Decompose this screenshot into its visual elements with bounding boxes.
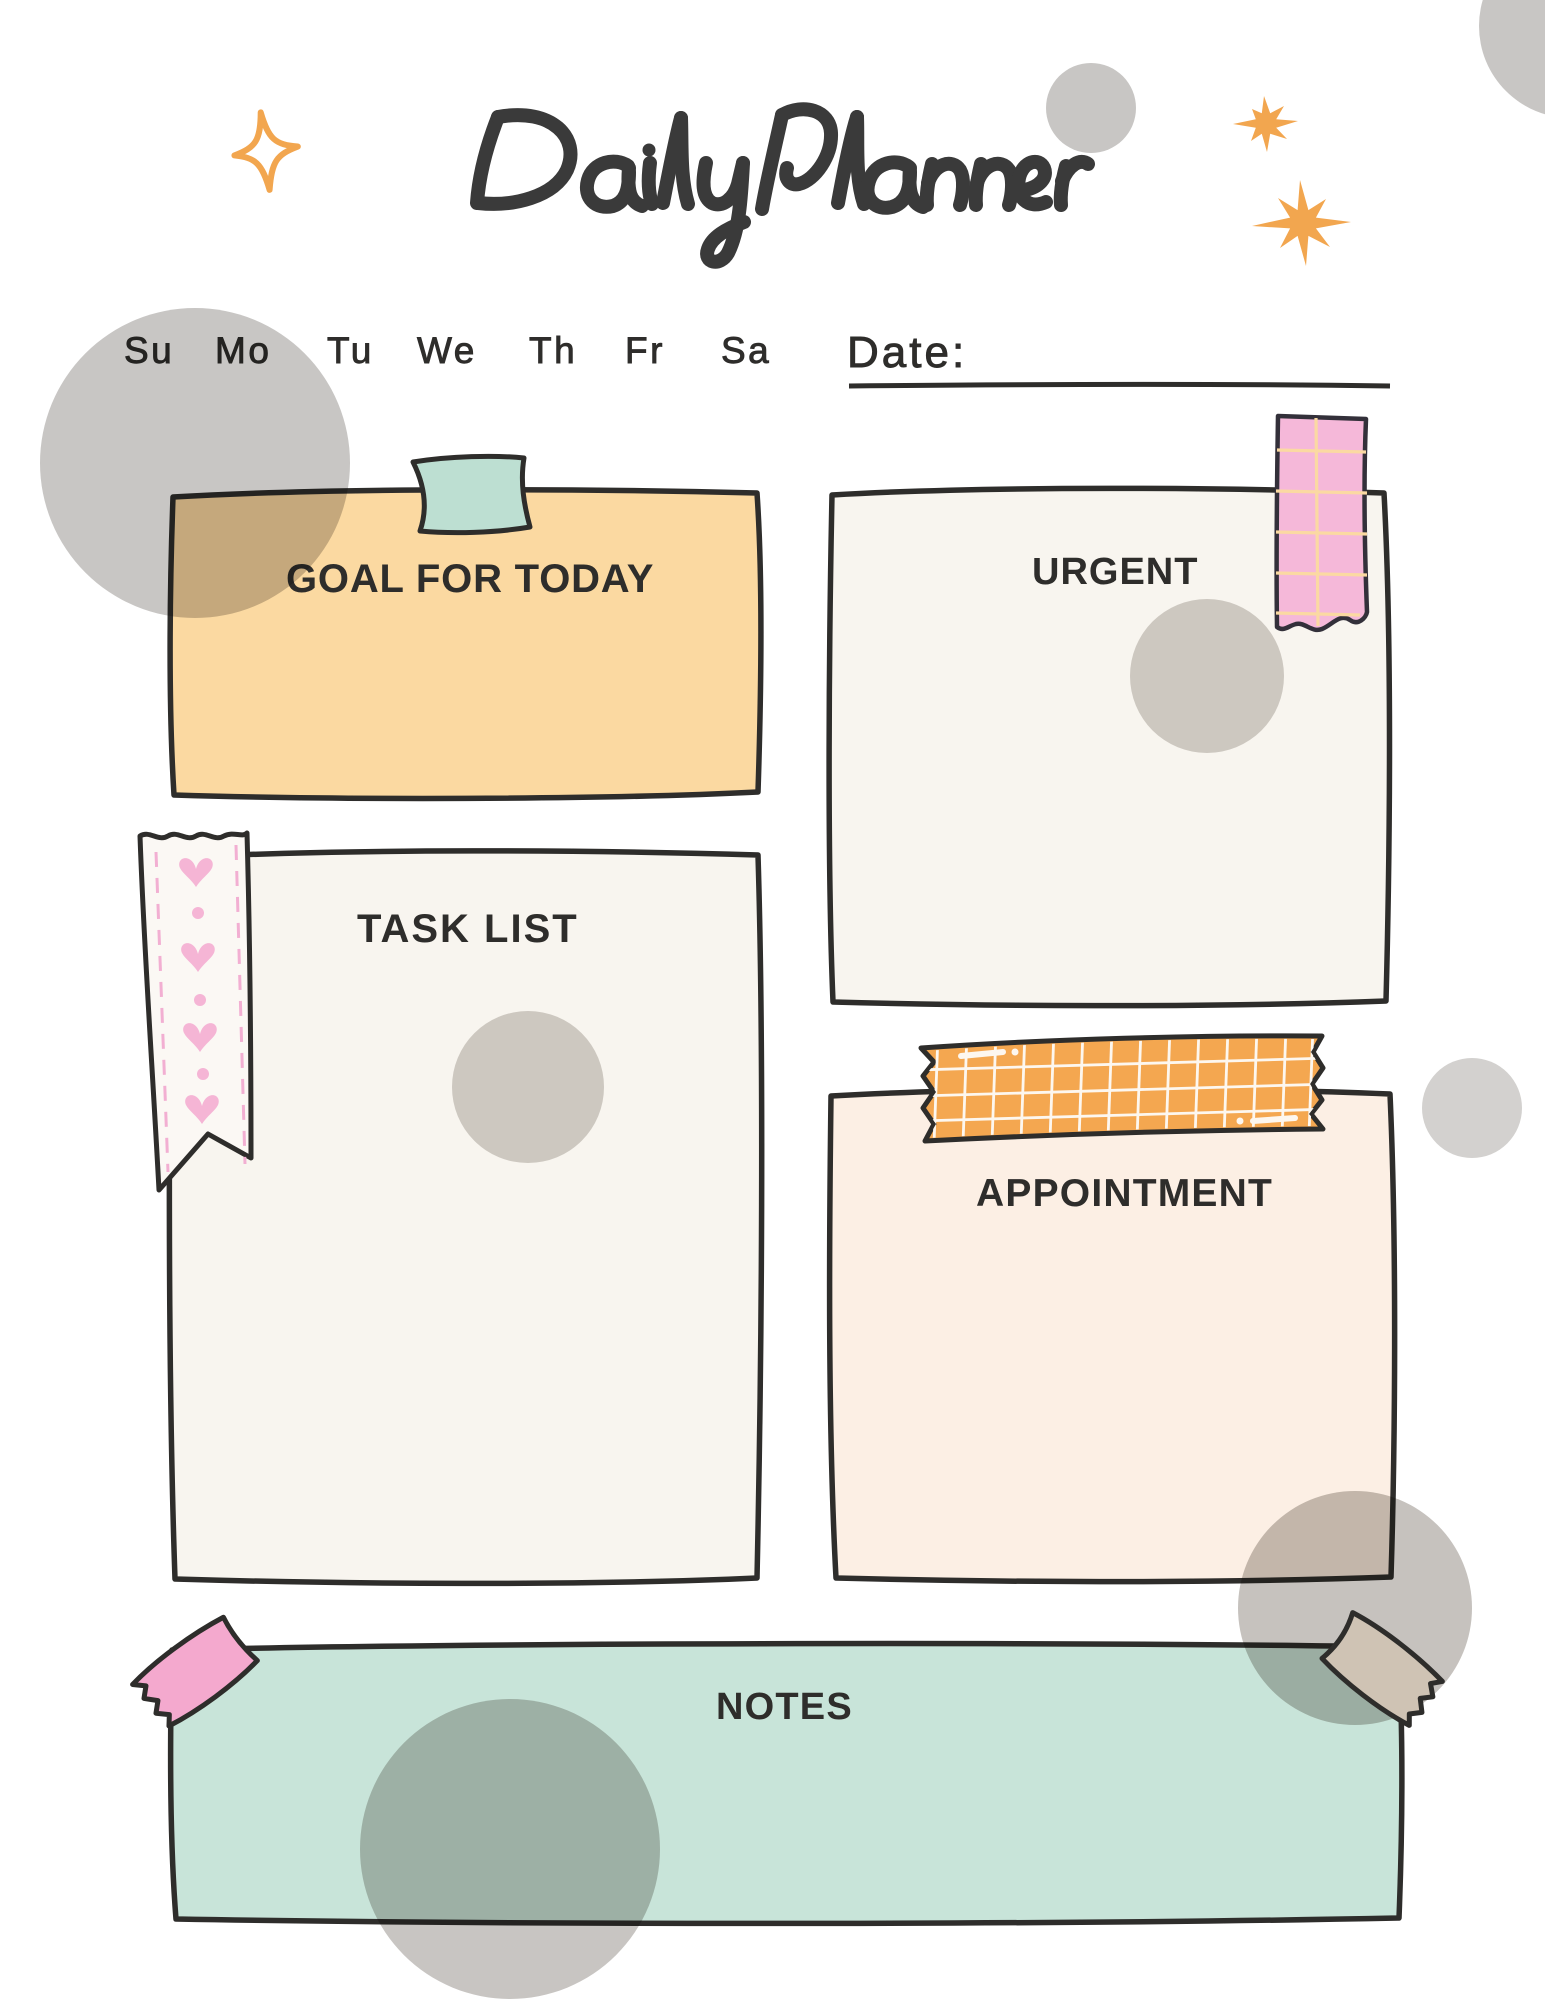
svg-text:We: We	[417, 330, 477, 371]
svg-text:APPOINTMENT: APPOINTMENT	[976, 1172, 1273, 1215]
svg-text:Date:: Date:	[847, 328, 967, 377]
svg-text:URGENT: URGENT	[1032, 551, 1198, 593]
svg-text:Fr: Fr	[625, 330, 665, 371]
svg-text:Sa: Sa	[721, 330, 771, 371]
svg-text:NOTES: NOTES	[716, 1686, 853, 1728]
svg-text:GOAL FOR TODAY: GOAL FOR TODAY	[286, 557, 654, 601]
svg-text:TASK LIST: TASK LIST	[357, 907, 579, 951]
svg-text:Tu: Tu	[327, 330, 374, 371]
svg-text:Th: Th	[529, 330, 577, 371]
